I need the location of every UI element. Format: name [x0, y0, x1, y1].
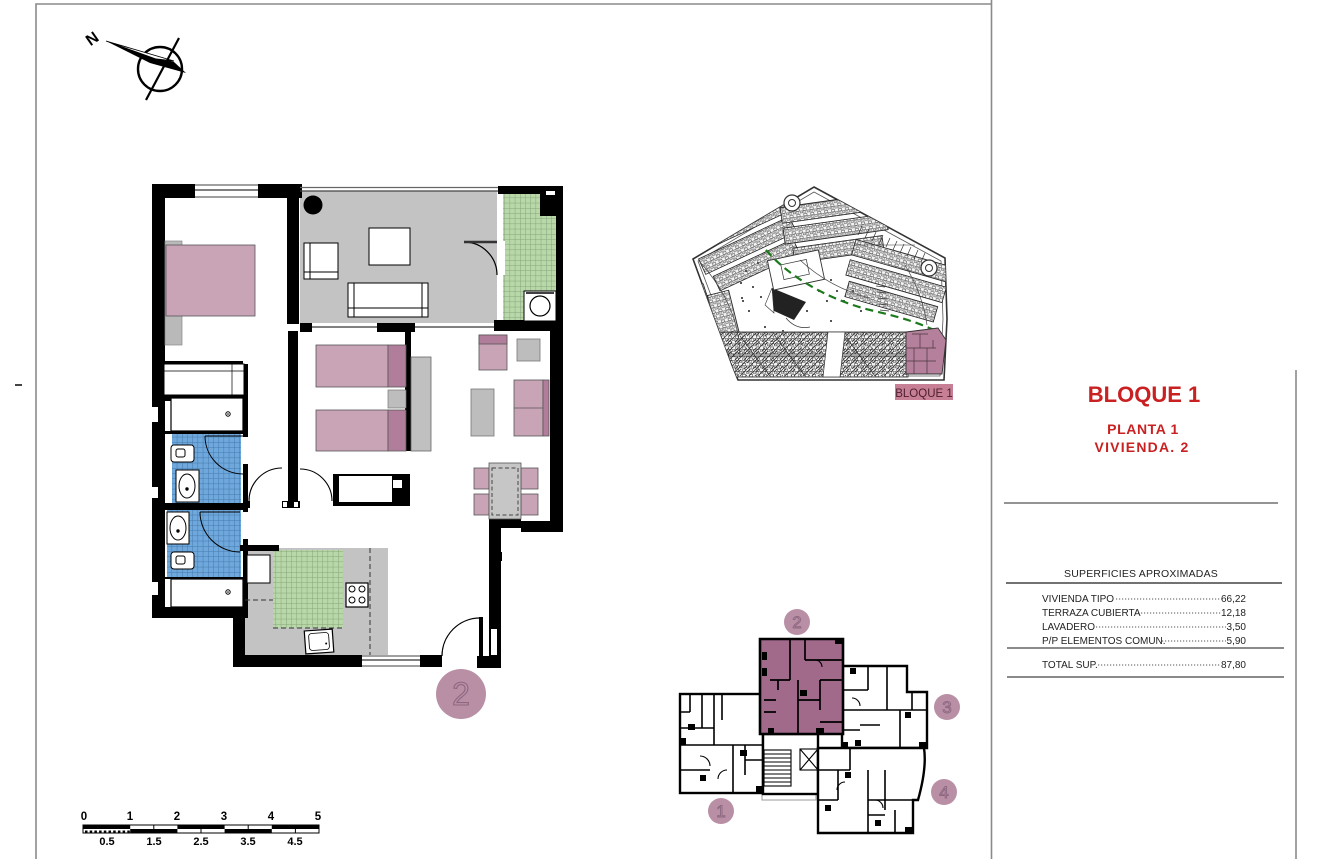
svg-text:SUPERFICIES APROXIMADAS: SUPERFICIES APROXIMADAS	[1064, 568, 1218, 580]
svg-text:5: 5	[315, 811, 322, 823]
svg-text:VIVIENDA TIPO: VIVIENDA TIPO	[1042, 594, 1114, 605]
svg-text:66,22: 66,22	[1221, 594, 1246, 605]
svg-text:5,90: 5,90	[1227, 636, 1247, 647]
svg-text:0: 0	[81, 811, 87, 823]
svg-text:TOTAL SUP.: TOTAL SUP.	[1042, 660, 1098, 671]
svg-text:3.5: 3.5	[240, 836, 255, 848]
svg-text:2.5: 2.5	[193, 836, 208, 848]
svg-text:2: 2	[174, 811, 180, 823]
svg-text:P/P ELEMENTOS COMUN.: P/P ELEMENTOS COMUN.	[1042, 636, 1166, 647]
svg-text:0.5: 0.5	[99, 836, 114, 848]
svg-text:N: N	[83, 29, 102, 50]
svg-text:1: 1	[716, 802, 725, 821]
svg-text:12,18: 12,18	[1221, 608, 1246, 619]
svg-text:1: 1	[127, 811, 134, 823]
svg-text:3,50: 3,50	[1227, 622, 1247, 633]
svg-text:87,80: 87,80	[1221, 660, 1246, 671]
svg-text:BLOQUE 1: BLOQUE 1	[895, 388, 953, 400]
svg-text:4: 4	[939, 783, 948, 802]
svg-text:3: 3	[221, 811, 227, 823]
svg-text:4: 4	[268, 811, 275, 823]
svg-text:2: 2	[452, 676, 470, 712]
svg-text:1.5: 1.5	[146, 836, 161, 848]
svg-text:4.5: 4.5	[287, 836, 302, 848]
svg-text:TERRAZA CUBIERTA: TERRAZA CUBIERTA	[1042, 608, 1141, 619]
svg-text:BLOQUE 1: BLOQUE 1	[1088, 382, 1200, 407]
svg-text:3: 3	[942, 698, 951, 717]
svg-text:LAVADERO: LAVADERO	[1042, 622, 1095, 633]
svg-text:2: 2	[792, 613, 801, 632]
svg-text:PLANTA 1: PLANTA 1	[1107, 421, 1179, 437]
svg-text:VIVIENDA. 2: VIVIENDA. 2	[1095, 439, 1190, 455]
